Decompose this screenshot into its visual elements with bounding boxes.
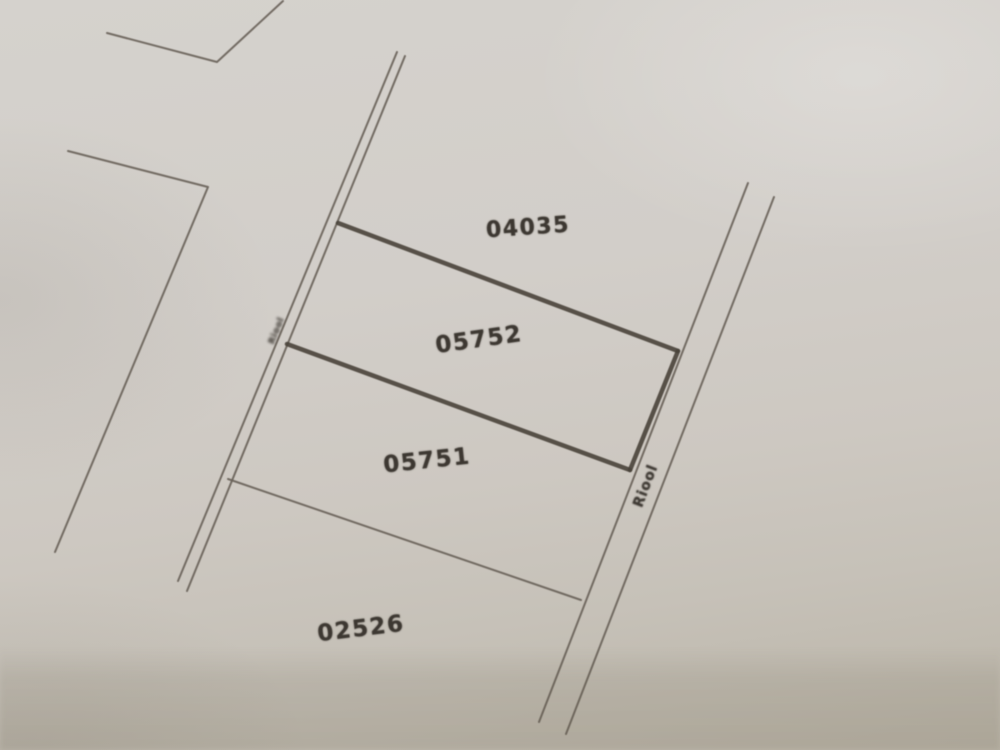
boundary-polyline-top-left (107, 1, 283, 62)
cadastral-map-photo: 04035 05752 05751 02526 Riool Riool (0, 0, 1000, 750)
right-channel-line-west (539, 183, 748, 722)
right-channel-line-east (566, 197, 774, 734)
boundary-polyline-left (55, 151, 208, 552)
central-channel-line-west (178, 52, 397, 581)
map-lines-svg (0, 0, 1000, 750)
parcel-05751-south-boundary (228, 479, 581, 600)
parcel-05752-east-boundary (630, 351, 678, 470)
central-channel-line-east (187, 56, 405, 591)
